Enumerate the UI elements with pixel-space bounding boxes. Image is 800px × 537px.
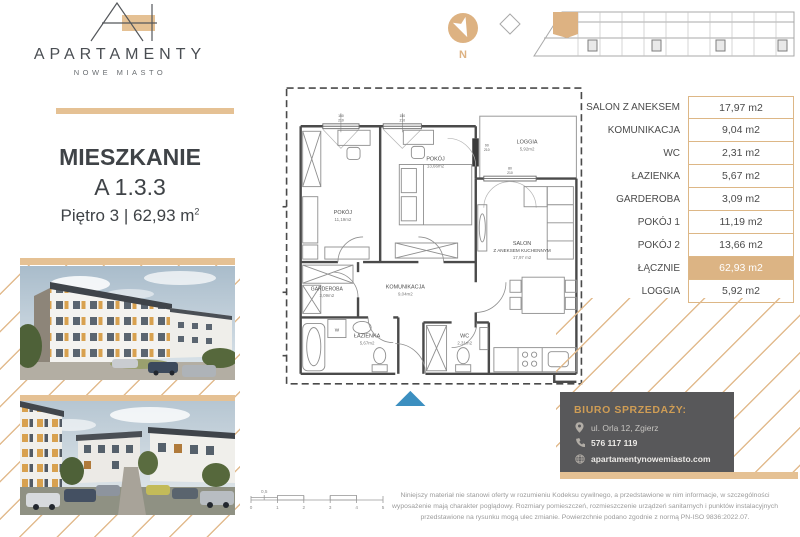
svg-text:210: 210	[484, 148, 490, 152]
room-wc-area: 2,31m2	[457, 341, 472, 346]
area-row-wc: WC 2,31 m2	[592, 142, 796, 165]
washer-label: W	[335, 328, 340, 333]
room-wc-name: WC	[460, 334, 469, 340]
svg-text:2: 2	[303, 505, 306, 510]
windows	[323, 124, 536, 181]
apartment-floor-area: Piętro 3 | 62,93 m2	[0, 206, 260, 226]
area-row-salon: SALON Z ANEKSEM 17,97 m2	[592, 96, 796, 119]
room-pokoj2-area: 13,66m2	[427, 164, 445, 169]
building-boundary-dashed	[283, 88, 582, 384]
room-komunikacja-area: 9,04m2	[398, 291, 413, 296]
room-salon-name: SALON	[513, 241, 531, 247]
floor-area-sup: 2	[194, 206, 199, 216]
area-row-pokoj1: POKÓJ 1 11,19 m2	[592, 211, 796, 234]
room-lazienka-name: ŁAZIENKA	[354, 334, 381, 340]
area-table: SALON Z ANEKSEM 17,97 m2 KOMUNIKACJA 9,0…	[592, 96, 796, 303]
building-photo-2	[20, 401, 235, 515]
svg-text:210: 210	[399, 119, 405, 123]
room-salon-name2: Z ANEKSEM KUCHENNYM	[493, 248, 551, 253]
area-row-komunikacja: KOMUNIKACJA 9,04 m2	[592, 119, 796, 142]
room-loggia-name: LOGGIA	[517, 139, 538, 145]
brand-subtitle: NOWE MIASTO	[0, 68, 240, 77]
sales-office-box: BIURO SPRZEDAŻY: ul. Orla 12, Zgierz 576…	[560, 392, 734, 472]
brand-logo-mark	[86, 2, 162, 42]
svg-text:0,5: 0,5	[261, 489, 268, 494]
svg-text:210: 210	[338, 119, 344, 123]
svg-text:150: 150	[399, 114, 405, 118]
svg-text:3: 3	[329, 505, 332, 510]
area-row-total: ŁĄCZNIE 62,93 m2	[592, 257, 796, 280]
area-row-garderoba: GARDEROBA 3,09 m2	[592, 188, 796, 211]
phone-icon	[574, 438, 585, 449]
svg-text:1: 1	[276, 505, 279, 510]
highlighted-unit	[553, 12, 578, 38]
photo1-top-bar	[20, 258, 235, 265]
location-pin-icon	[574, 422, 585, 433]
room-pokoj1-area: 11,19m2	[335, 217, 352, 222]
info-bottom-bar	[560, 472, 798, 479]
room-loggia-area: 5,92m2	[520, 146, 535, 151]
svg-text:80: 80	[508, 167, 512, 171]
area-row-lazienka: ŁAZIENKA 5,67 m2	[592, 165, 796, 188]
sales-office-phone-line: 576 117 119	[574, 438, 734, 449]
legal-disclaimer: Niniejszy materiał nie stanowi oferty w …	[392, 491, 778, 524]
apartment-unit-number: A 1.3.3	[0, 174, 260, 201]
svg-text:0: 0	[250, 505, 253, 510]
svg-text:210: 210	[507, 171, 513, 175]
room-salon-area: 17,97 m2	[513, 255, 532, 260]
svg-text:90: 90	[485, 143, 489, 147]
svg-text:5: 5	[382, 505, 385, 510]
scale-bar: 0,5 0 1 2 3 4 5	[243, 486, 388, 512]
compass-north-label: N	[459, 49, 467, 61]
sales-office-address-line: ul. Orla 12, Zgierz	[574, 422, 734, 433]
floor-area-text: Piętro 3 | 62,93 m	[61, 206, 195, 225]
sales-office-website-line: apartamentynowemiasto.com	[574, 453, 734, 464]
room-komunikacja-name: KOMUNIKACJA	[386, 284, 426, 290]
compass: N	[437, 6, 489, 62]
room-pokoj2-name: POKÓJ	[426, 155, 445, 162]
room-garderoba-area: 3,09m2	[319, 293, 334, 298]
sales-office-website[interactable]: apartamentynowemiasto.com	[591, 454, 711, 464]
svg-text:150: 150	[338, 114, 344, 118]
globe-icon	[574, 453, 585, 464]
sales-office-phone: 576 117 119	[591, 438, 637, 448]
room-lazienka-area: 5,67m2	[360, 341, 375, 346]
flyer-page: APARTAMENTY NOWE MIASTO MIESZKANIE A 1.3…	[0, 0, 800, 537]
sales-office-address: ul. Orla 12, Zgierz	[591, 423, 659, 433]
svg-text:4: 4	[355, 505, 358, 510]
room-pokoj1-name: POKÓJ	[334, 209, 353, 216]
apartment-heading: MIESZKANIE	[0, 144, 260, 171]
floor-plan: 150 210 150 210 90 210 80 210 POKÓJ 11,1…	[282, 86, 585, 408]
building-photo-1	[20, 266, 235, 380]
area-row-pokoj2: POKÓJ 2 13,66 m2	[592, 234, 796, 257]
sales-office-title: BIURO SPRZEDAŻY:	[574, 404, 734, 416]
entrance-arrow-icon	[395, 391, 425, 406]
floor-overview-map	[492, 4, 798, 64]
brand-name: APARTAMENTY	[0, 46, 240, 64]
room-garderoba-name: GARDEROBA	[311, 286, 344, 292]
logo-divider-bar	[56, 108, 234, 114]
